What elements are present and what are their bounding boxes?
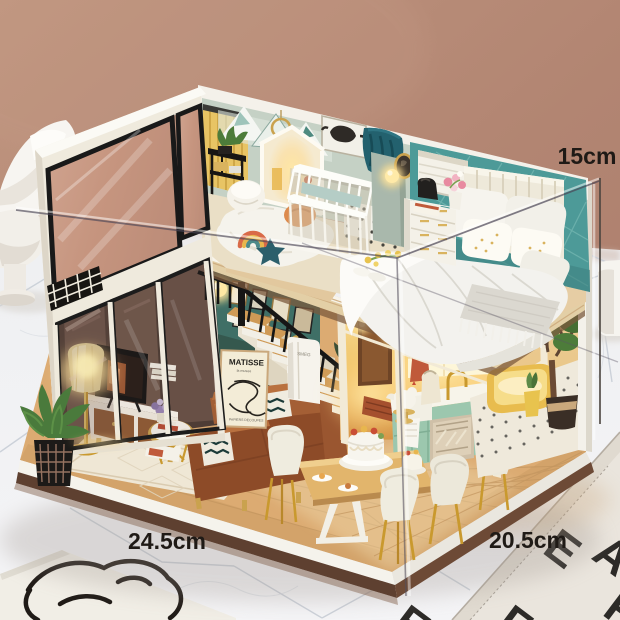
svg-text:20.5cm: 20.5cm [489,527,567,553]
svg-text:la musee: la musee [237,369,252,374]
svg-text:24.5cm: 24.5cm [128,528,206,554]
svg-text:MATISSE: MATISSE [229,357,265,367]
svg-text:15cm: 15cm [558,143,617,169]
